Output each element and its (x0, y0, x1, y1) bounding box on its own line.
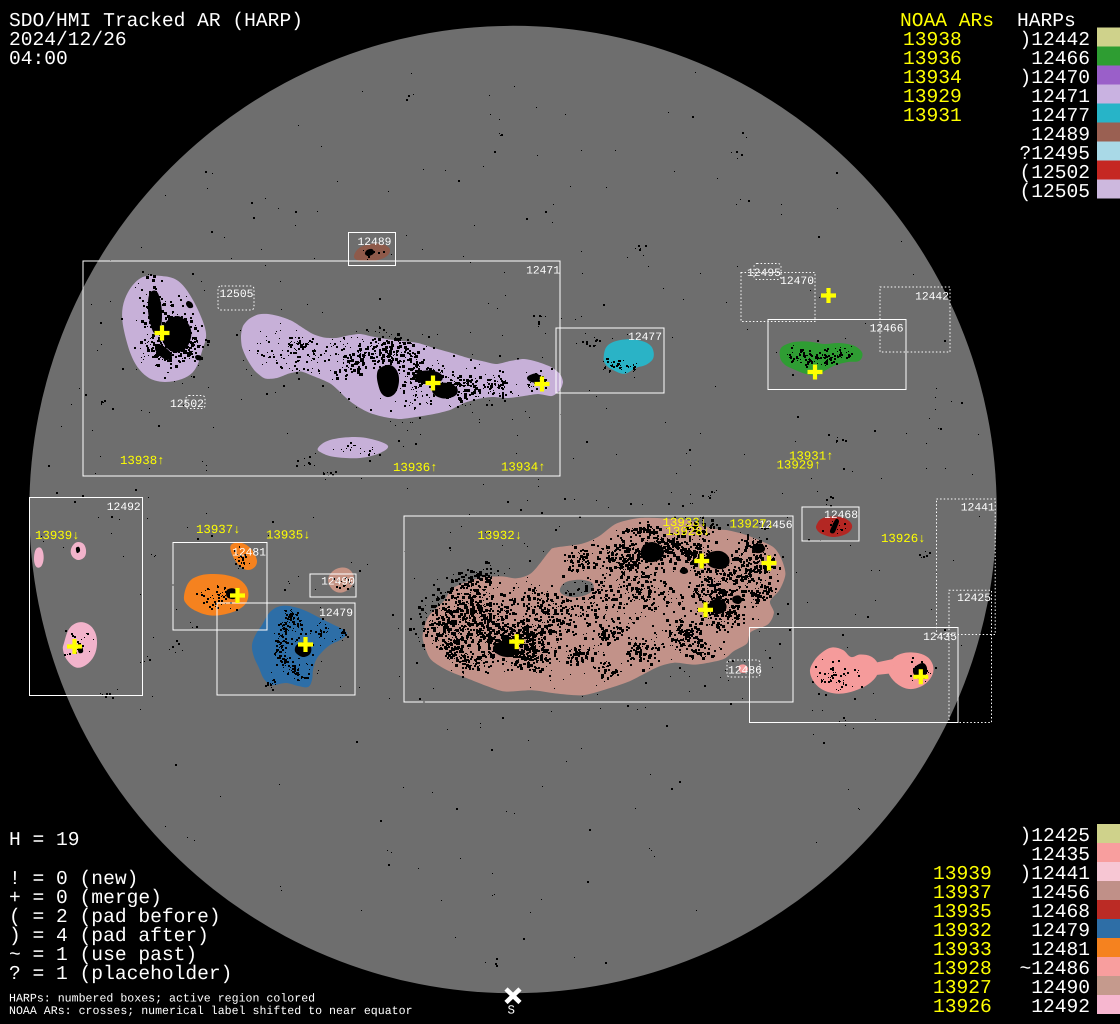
svg-text:04:00: 04:00 (9, 48, 68, 70)
svg-text:13931: 13931 (903, 105, 962, 127)
svg-text:13928↓: 13928↓ (666, 525, 711, 539)
svg-text:NOAA ARs: crosses; numerical l: NOAA ARs: crosses; numerical label shift… (9, 1005, 413, 1018)
svg-text:HARPs: numbered boxes; active: HARPs: numbered boxes; active region col… (9, 993, 315, 1006)
svg-text:S: S (508, 1004, 515, 1018)
svg-text:13935↓: 13935↓ (266, 529, 311, 543)
svg-text:13926↓: 13926↓ (881, 532, 926, 546)
svg-text:12477: 12477 (628, 332, 662, 344)
svg-text:? = 1 (placeholder): ? = 1 (placeholder) (9, 963, 232, 985)
svg-text:13929↑: 13929↑ (777, 459, 822, 473)
svg-text:13926: 13926 (933, 996, 992, 1018)
svg-text:12490: 12490 (321, 577, 355, 589)
svg-text:12470: 12470 (780, 276, 814, 288)
svg-text:12492: 12492 (107, 502, 141, 514)
svg-text:H = 19: H = 19 (9, 829, 80, 851)
svg-text:13938↑: 13938↑ (120, 454, 165, 468)
svg-text:13936↑: 13936↑ (393, 461, 438, 475)
svg-text:12505: 12505 (220, 289, 254, 301)
svg-text:12442: 12442 (915, 292, 949, 304)
svg-text:13937↓: 13937↓ (196, 523, 241, 537)
svg-text:12492: 12492 (1031, 996, 1090, 1018)
svg-text:13927↓: 13927↓ (730, 518, 775, 532)
svg-text:12425: 12425 (957, 593, 991, 605)
svg-text:12435: 12435 (923, 632, 957, 644)
svg-text:(12505: (12505 (1019, 181, 1090, 203)
svg-text:12479: 12479 (319, 608, 353, 620)
svg-text:12495: 12495 (747, 268, 781, 280)
svg-text:13932↓: 13932↓ (478, 529, 523, 543)
svg-text:13939↓: 13939↓ (35, 529, 80, 543)
svg-text:12481: 12481 (232, 548, 266, 560)
svg-text:12468: 12468 (824, 510, 858, 522)
svg-text:12489: 12489 (358, 237, 392, 249)
svg-text:13934↑: 13934↑ (501, 461, 546, 475)
svg-text:12486: 12486 (728, 666, 762, 678)
svg-text:12441: 12441 (961, 503, 995, 515)
svg-text:12466: 12466 (870, 324, 904, 336)
svg-text:12502: 12502 (170, 399, 204, 411)
svg-text:12471: 12471 (526, 266, 560, 278)
